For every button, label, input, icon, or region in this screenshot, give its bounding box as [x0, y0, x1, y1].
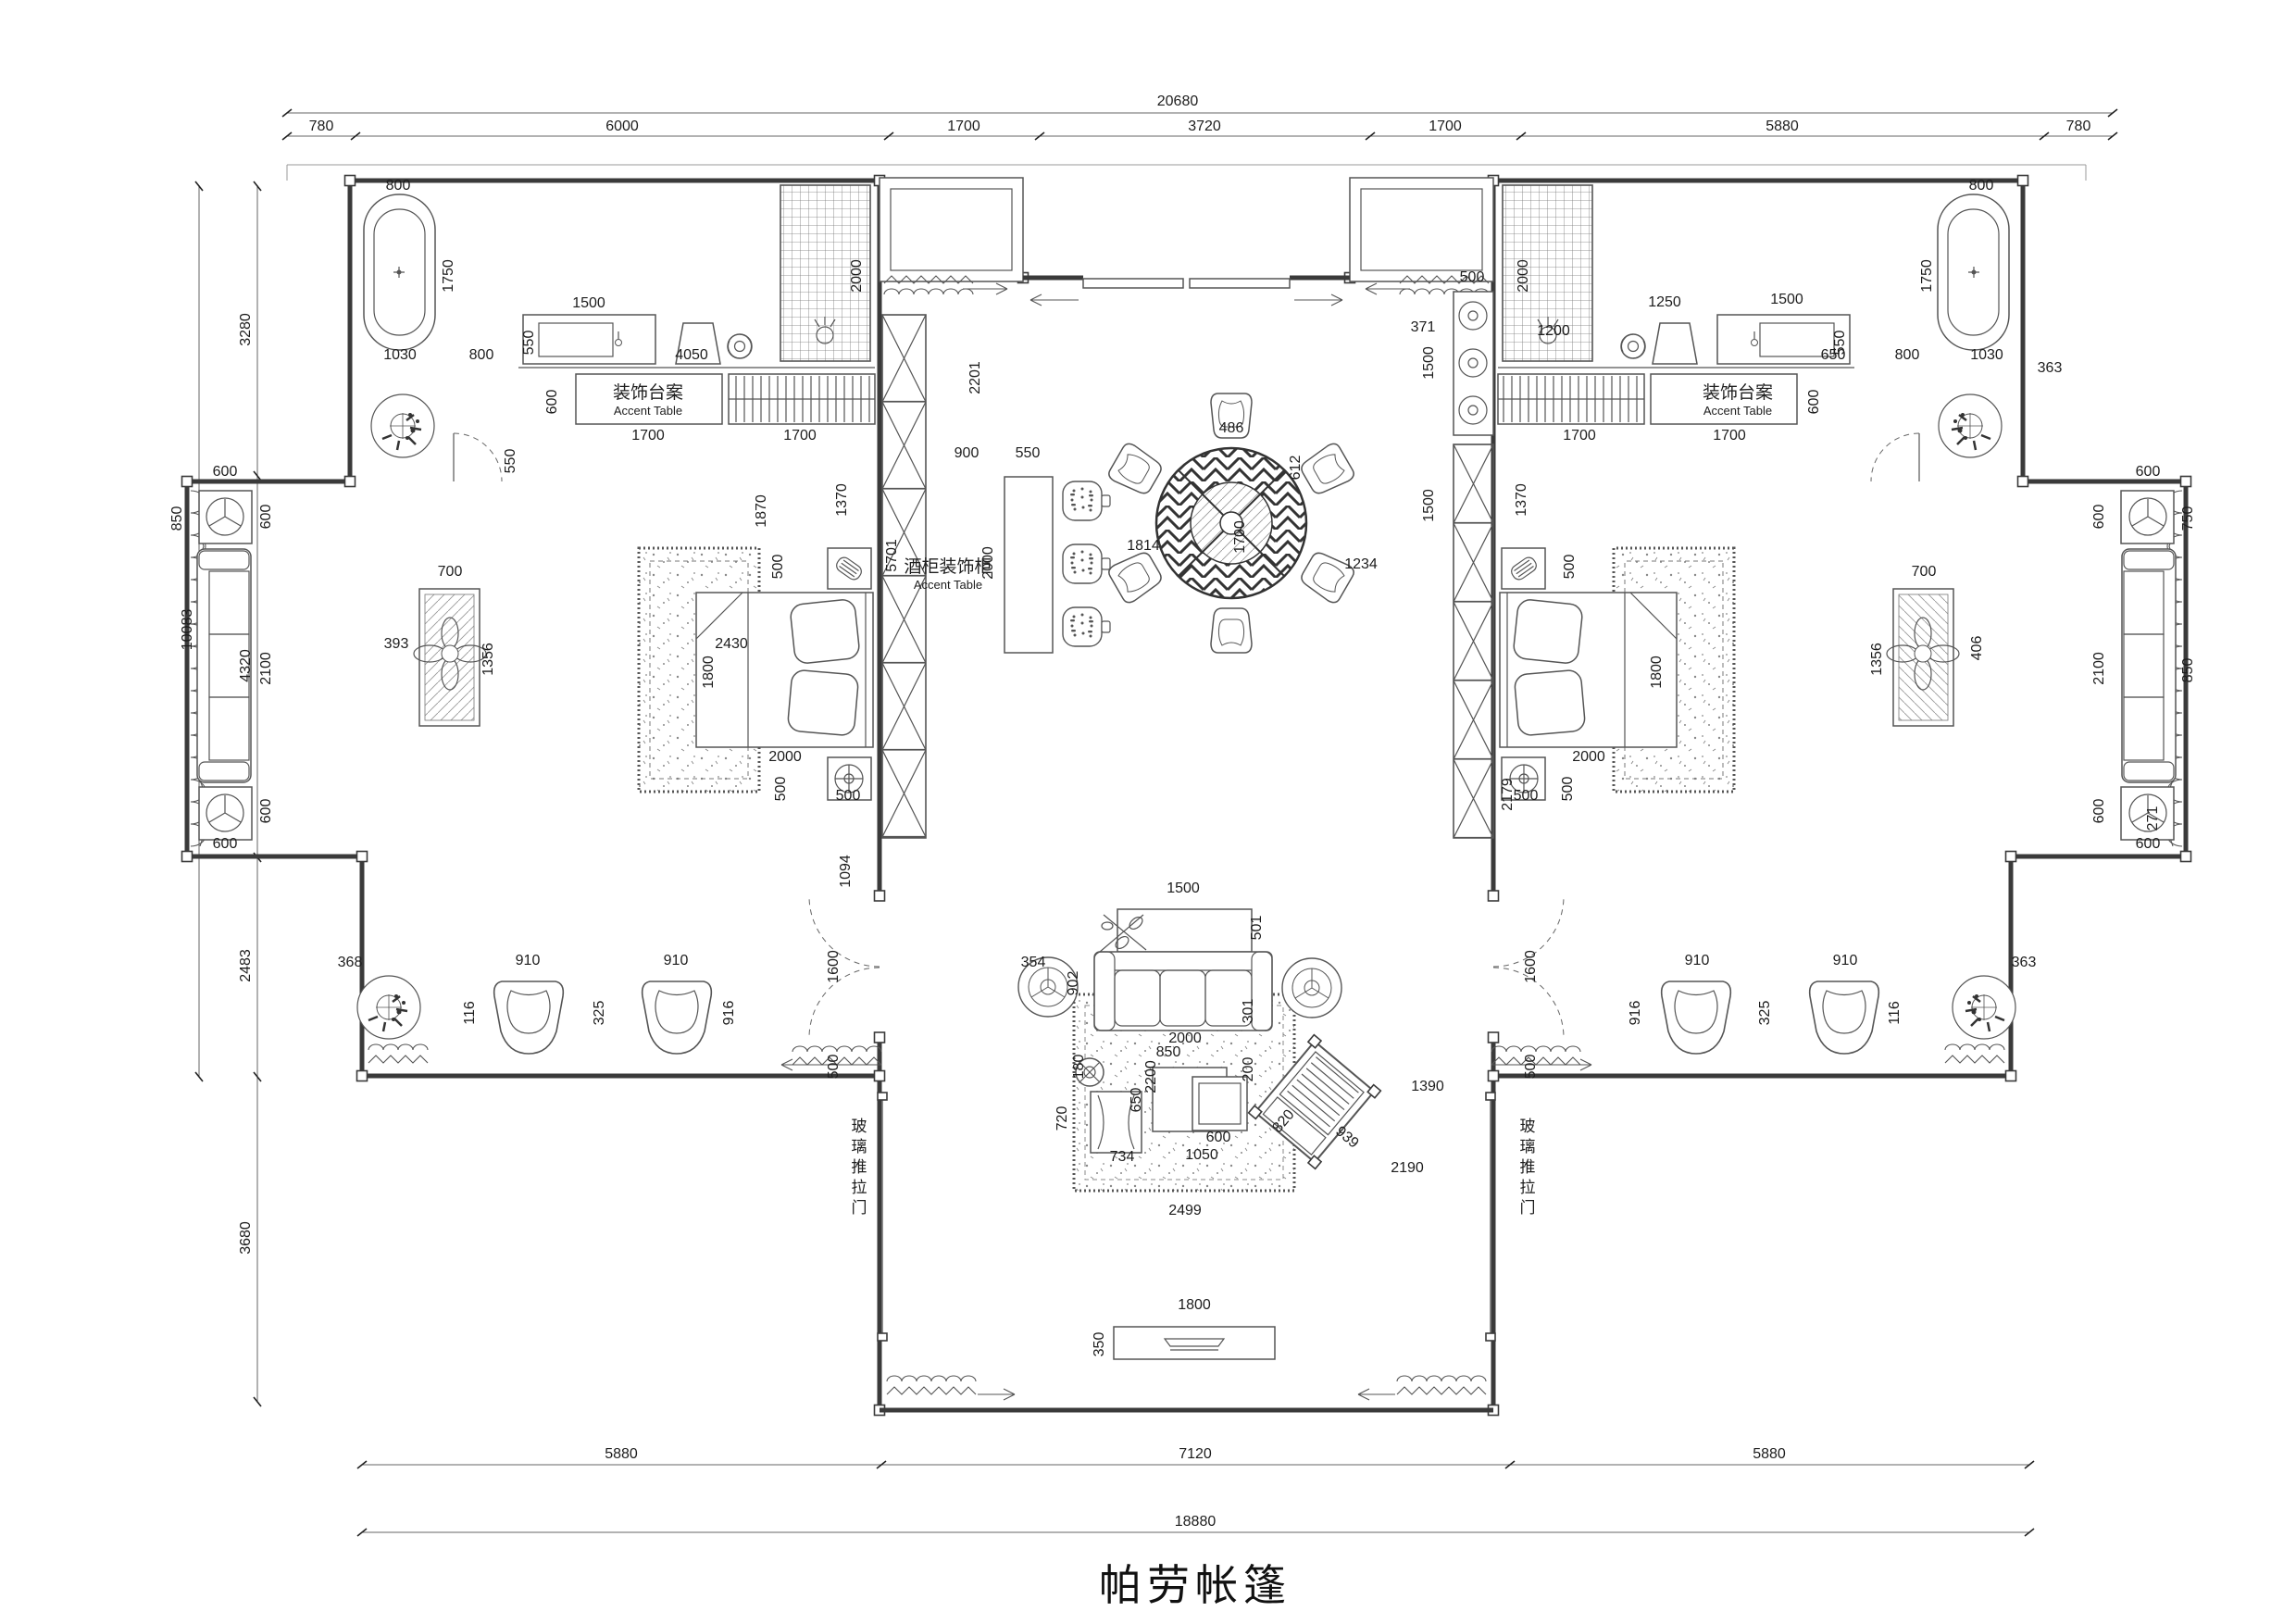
- dim-label: 1500: [572, 295, 605, 311]
- dim-label: 1200: [1537, 323, 1570, 339]
- dim-label: 500: [836, 788, 861, 804]
- drawing-title: 帕劳帐篷: [1099, 1552, 1291, 1613]
- dim-label: 600: [258, 505, 274, 530]
- dim-label: 1800: [1649, 656, 1665, 689]
- dim-label: 301: [1241, 999, 1256, 1024]
- dim-label: 2430: [715, 636, 748, 652]
- dim-label: 2000: [849, 259, 865, 293]
- bar-counter: [1004, 477, 1110, 653]
- dim-label: 850: [169, 506, 185, 531]
- dim-label: 1356: [480, 643, 496, 676]
- eave-line: [287, 165, 2086, 181]
- dim-label: 325: [1757, 1001, 1773, 1026]
- dim-label: 1356: [1869, 643, 1885, 676]
- dim-label: 2000: [1516, 259, 1531, 293]
- dim-label: 780: [2066, 119, 2091, 134]
- dim-label: 1030: [1970, 347, 2003, 363]
- dim-label: 1700: [1429, 119, 1462, 134]
- dim-label: 2100: [2091, 652, 2107, 685]
- dim-label: 200: [1241, 1057, 1256, 1082]
- right-divider-cabinet: [1454, 292, 1493, 838]
- dim-label: 1370: [1514, 483, 1529, 517]
- dim-label: 600: [258, 799, 274, 824]
- dim-label: 800: [469, 347, 494, 363]
- floor-plan-svg: 2068078060001700372017005880780100833280…: [0, 0, 2296, 1624]
- dim-label: 1870: [754, 494, 769, 528]
- dim-label: 850: [2180, 658, 2196, 683]
- dim-label: 2201: [967, 361, 983, 394]
- dim-label: 500: [773, 777, 789, 802]
- dim-label: 354: [1021, 955, 1046, 970]
- glass-sliding-door-label: 玻璃推拉门: [852, 1118, 867, 1217]
- dim-label: 1500: [1421, 346, 1437, 380]
- glass-sliding-door-label: 玻璃推拉门: [1520, 1118, 1536, 1217]
- tv-console: [1114, 1327, 1275, 1359]
- dim-label: 180: [1071, 1055, 1087, 1080]
- dim-label: 18880: [1175, 1514, 1217, 1530]
- dim-label: 500: [1560, 777, 1576, 802]
- dim-label: 500: [1523, 1055, 1539, 1080]
- dim-label: 1700: [1563, 428, 1596, 443]
- dim-label: 1500: [1770, 292, 1803, 307]
- dim-label: 325: [592, 1001, 607, 1026]
- dim-label: 600: [2136, 464, 2161, 480]
- dim-label: 1750: [1919, 259, 1935, 293]
- dim-label: 1234: [1344, 556, 1378, 572]
- dim-label: 2100: [258, 652, 274, 685]
- dining-chair: [1106, 547, 1166, 605]
- wine-cabinet-label-zh: 酒柜装饰柜: [904, 556, 992, 577]
- coffee-table-small: [1192, 1077, 1247, 1131]
- dim-label: 1030: [383, 347, 417, 363]
- dim-label: 800: [1895, 347, 1920, 363]
- dim-label: 7120: [1179, 1446, 1212, 1462]
- dim-label: 1800: [701, 656, 717, 689]
- dim-label: 368: [338, 955, 363, 970]
- dim-label: 3720: [1188, 119, 1221, 134]
- dim-label: 371: [1411, 319, 1436, 335]
- bar-stool: [1063, 544, 1110, 583]
- dim-label: 1050: [1185, 1147, 1218, 1163]
- dim-label: 910: [1833, 953, 1858, 968]
- dim-label: 2190: [1391, 1160, 1424, 1176]
- dim-label: 1700: [947, 119, 980, 134]
- dim-label: 550: [1016, 445, 1041, 461]
- floor-lamp: [1282, 958, 1341, 1018]
- dim-label: 700: [1912, 564, 1937, 580]
- dim-label: 1700: [783, 428, 817, 443]
- dim-label: 910: [1685, 953, 1710, 968]
- dim-label: 1094: [838, 855, 854, 888]
- dim-label: 5880: [1753, 1446, 1786, 1462]
- dim-label: 916: [721, 1001, 737, 1026]
- accent-table-label-zh: 装饰台案: [613, 382, 683, 403]
- dim-label: 600: [213, 464, 238, 480]
- dim-label: 406: [1969, 636, 1985, 661]
- dim-label: 5880: [605, 1446, 638, 1462]
- dim-label: 780: [309, 119, 334, 134]
- dining-chair: [1211, 608, 1252, 653]
- dim-label: 116: [462, 1001, 478, 1025]
- wine-cabinet-label-en: Accent Table: [914, 578, 982, 592]
- dim-label: 2200: [1143, 1060, 1159, 1093]
- dim-label: 650: [1821, 347, 1846, 363]
- dim-label: 500: [770, 555, 786, 580]
- dim-label: 1700: [1713, 428, 1746, 443]
- dim-label: 910: [664, 953, 689, 968]
- dim-label: 5701: [884, 539, 900, 572]
- dim-label: 6000: [605, 119, 639, 134]
- dim-label: 3280: [238, 313, 254, 346]
- dim-label: 550: [521, 331, 537, 356]
- dim-label: 500: [1514, 788, 1539, 804]
- dim-label: 5880: [1766, 119, 1799, 134]
- dim-label: 612: [1288, 456, 1304, 481]
- dim-label: 2000: [768, 749, 802, 765]
- dim-label: 1500: [1167, 881, 1200, 896]
- dim-label: 2000: [1572, 749, 1605, 765]
- dim-label: 500: [1562, 555, 1578, 580]
- dim-label: 1600: [826, 950, 842, 983]
- dim-label: 1390: [1411, 1079, 1444, 1094]
- accent-table-label-en: Accent Table: [614, 404, 682, 418]
- dim-label: 486: [1219, 420, 1244, 436]
- dim-label: 116: [1887, 1001, 1903, 1025]
- dim-label: 4050: [675, 347, 708, 363]
- dim-label: 393: [384, 636, 409, 652]
- dim-label: 700: [438, 564, 463, 580]
- dim-label: 1600: [1523, 950, 1539, 983]
- dim-label: 1250: [1648, 294, 1681, 310]
- dim-label: 3680: [238, 1221, 254, 1255]
- dim-label: 750: [2180, 506, 2196, 531]
- dim-label: 850: [1156, 1044, 1181, 1060]
- console-table: [1100, 909, 1252, 952]
- dim-label: 734: [1110, 1149, 1135, 1165]
- dim-label: 600: [2091, 505, 2107, 530]
- dim-label: 1750: [441, 259, 456, 293]
- dim-label: 363: [2038, 360, 2063, 376]
- dim-label: 10083: [180, 609, 195, 651]
- dim-label: 600: [544, 390, 560, 415]
- dim-label: 600: [1206, 1130, 1231, 1145]
- dim-label: 720: [1054, 1106, 1070, 1131]
- annotation-layer: 2068078060001700372017005880780100833280…: [169, 94, 2196, 1530]
- dim-label: 800: [1969, 178, 1994, 194]
- dim-label: 650: [1129, 1088, 1144, 1113]
- dim-label: 600: [2091, 799, 2107, 824]
- dim-label: 902: [1066, 971, 1081, 996]
- dim-label: 916: [1628, 1001, 1643, 1026]
- dim-label: 900: [955, 445, 980, 461]
- dining-chair: [1106, 441, 1166, 498]
- dim-label: 350: [1092, 1332, 1107, 1357]
- dim-label: 2499: [1168, 1203, 1202, 1218]
- dim-label: 1800: [1178, 1297, 1211, 1313]
- accent-table-label-en: Accent Table: [1703, 404, 1772, 418]
- dim-label: 600: [1806, 390, 1822, 415]
- dim-label: 1700: [631, 428, 665, 443]
- dim-label: 4320: [238, 649, 254, 682]
- floor-plan-canvas: 2068078060001700372017005880780100833280…: [0, 0, 2296, 1624]
- dim-label: 500: [1460, 269, 1485, 285]
- dim-label: 363: [2012, 955, 2037, 970]
- dim-label: 550: [503, 449, 518, 474]
- dim-label: 20680: [1157, 94, 1199, 109]
- dim-label: 1814: [1127, 538, 1160, 554]
- bar-stool: [1063, 607, 1110, 646]
- bar-stool: [1063, 481, 1110, 520]
- dim-label: 271: [2145, 806, 2161, 831]
- dim-label: 800: [386, 178, 411, 194]
- dim-label: 501: [1249, 916, 1265, 941]
- dim-label: 600: [2136, 836, 2161, 852]
- dining-chair: [1297, 441, 1356, 498]
- dim-label: 1700: [1232, 520, 1248, 554]
- dim-label: 910: [516, 953, 541, 968]
- dim-label: 500: [826, 1055, 842, 1080]
- dim-label: 1500: [1421, 489, 1437, 522]
- dim-label: 1370: [834, 483, 850, 517]
- dim-label: 600: [213, 836, 238, 852]
- accent-table-label-zh: 装饰台案: [1703, 382, 1773, 403]
- dim-label: 2483: [238, 949, 254, 982]
